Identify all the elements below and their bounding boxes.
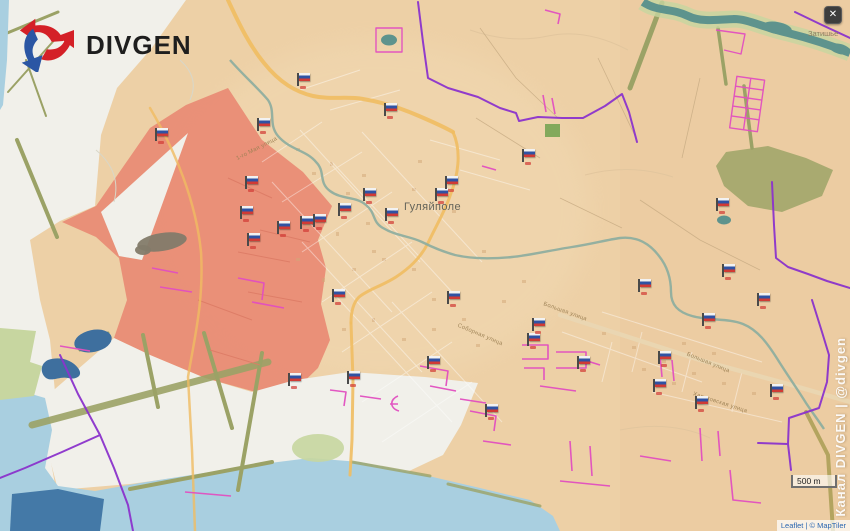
flag-marker-russia[interactable] xyxy=(288,372,302,389)
flag-sublabel xyxy=(250,246,256,249)
russia-flag-icon xyxy=(449,291,460,299)
flag-marker-russia[interactable] xyxy=(313,213,327,230)
flag-marker-russia[interactable] xyxy=(338,202,352,219)
flag-marker-russia[interactable] xyxy=(485,403,499,420)
flag-sublabel xyxy=(158,141,164,144)
flag-sublabel xyxy=(438,201,444,204)
russia-flag-icon xyxy=(640,279,651,287)
flag-sublabel xyxy=(387,116,393,119)
flag-sublabel xyxy=(350,384,356,387)
flag-sublabel xyxy=(450,304,456,307)
flag-marker-russia[interactable] xyxy=(638,278,652,295)
flag-sublabel xyxy=(535,331,541,334)
russia-flag-icon xyxy=(290,373,301,381)
flag-marker-russia[interactable] xyxy=(155,127,169,144)
russia-flag-icon xyxy=(487,404,498,412)
russia-flag-icon xyxy=(759,293,770,301)
map-canvas[interactable]: 1-го Мая улицаСоборная улицаБольшая улиц… xyxy=(0,0,850,531)
flag-sublabel xyxy=(525,162,531,165)
flag-marker-russia[interactable] xyxy=(702,312,716,329)
flag-sublabel xyxy=(366,201,372,204)
russia-flag-icon xyxy=(247,176,258,184)
attribution[interactable]: Leaflet | © MapTiler xyxy=(777,520,850,531)
flag-marker-russia[interactable] xyxy=(245,175,259,192)
flag-sublabel xyxy=(719,211,725,214)
russia-flag-icon xyxy=(242,206,253,214)
flag-sublabel xyxy=(243,219,249,222)
flag-sublabel xyxy=(530,346,536,349)
flag-marker-russia[interactable] xyxy=(522,148,536,165)
flags-layer xyxy=(0,0,850,531)
flag-marker-russia[interactable] xyxy=(332,288,346,305)
russia-flag-icon xyxy=(365,188,376,196)
russia-flag-icon xyxy=(340,203,351,211)
russia-flag-icon xyxy=(259,118,270,126)
russia-flag-icon xyxy=(704,313,715,321)
flag-sublabel xyxy=(580,369,586,372)
flag-marker-russia[interactable] xyxy=(247,232,261,249)
russia-flag-icon xyxy=(315,214,326,222)
flag-marker-russia[interactable] xyxy=(577,355,591,372)
russia-flag-icon xyxy=(302,216,313,224)
flag-sublabel xyxy=(280,234,286,237)
brand-logo-icon xyxy=(16,8,74,72)
flag-sublabel xyxy=(335,302,341,305)
flag-sublabel xyxy=(430,369,436,372)
flag-marker-russia[interactable] xyxy=(385,207,399,224)
flag-sublabel xyxy=(248,189,254,192)
russia-flag-icon xyxy=(724,264,735,272)
brand-logo: DIVGEN xyxy=(16,8,192,72)
flag-marker-russia[interactable] xyxy=(257,117,271,134)
flag-sublabel xyxy=(661,364,667,367)
scale-bar: 500 m xyxy=(791,475,837,488)
russia-flag-icon xyxy=(349,371,360,379)
flag-marker-russia[interactable] xyxy=(240,205,254,222)
watermark: Канал DIVGEN | @divgen xyxy=(833,337,848,517)
russia-flag-icon xyxy=(772,384,783,392)
russia-flag-icon xyxy=(697,396,708,404)
flag-marker-russia[interactable] xyxy=(427,355,441,372)
flag-sublabel xyxy=(488,417,494,420)
flag-sublabel xyxy=(705,326,711,329)
russia-flag-icon xyxy=(299,73,310,81)
flag-marker-russia[interactable] xyxy=(384,102,398,119)
russia-flag-icon xyxy=(655,379,666,387)
flag-sublabel xyxy=(656,392,662,395)
flag-marker-russia[interactable] xyxy=(653,378,667,395)
flag-sublabel xyxy=(260,131,266,134)
flag-sublabel xyxy=(698,409,704,412)
flag-sublabel xyxy=(303,229,309,232)
flag-sublabel xyxy=(760,306,766,309)
russia-flag-icon xyxy=(279,221,290,229)
flag-marker-russia[interactable] xyxy=(532,317,546,334)
russia-flag-icon xyxy=(157,128,168,136)
flag-marker-russia[interactable] xyxy=(447,290,461,307)
flag-marker-russia[interactable] xyxy=(770,383,784,400)
flag-marker-russia[interactable] xyxy=(722,263,736,280)
flag-sublabel xyxy=(316,227,322,230)
flag-sublabel xyxy=(291,386,297,389)
flag-marker-russia[interactable] xyxy=(757,292,771,309)
flag-marker-russia[interactable] xyxy=(527,332,541,349)
russia-flag-icon xyxy=(534,318,545,326)
russia-flag-icon xyxy=(386,103,397,111)
russia-flag-icon xyxy=(718,198,729,206)
flag-sublabel xyxy=(388,221,394,224)
russia-flag-icon xyxy=(579,356,590,364)
russia-flag-icon xyxy=(660,351,671,359)
flag-sublabel xyxy=(341,216,347,219)
flag-sublabel xyxy=(773,397,779,400)
flag-sublabel xyxy=(300,86,306,89)
brand-name: DIVGEN xyxy=(86,30,192,61)
flag-marker-russia[interactable] xyxy=(363,187,377,204)
flag-sublabel xyxy=(641,292,647,295)
close-button[interactable]: ✕ xyxy=(824,6,842,24)
flag-marker-russia[interactable] xyxy=(716,197,730,214)
russia-flag-icon xyxy=(429,356,440,364)
russia-flag-icon xyxy=(387,208,398,216)
flag-sublabel xyxy=(448,189,454,192)
flag-marker-russia[interactable] xyxy=(695,395,709,412)
flag-marker-russia[interactable] xyxy=(277,220,291,237)
russia-flag-icon xyxy=(524,149,535,157)
flag-marker-russia[interactable] xyxy=(300,215,314,232)
flag-sublabel xyxy=(725,277,731,280)
russia-flag-icon xyxy=(529,333,540,341)
flag-marker-russia[interactable] xyxy=(445,175,459,192)
russia-flag-icon xyxy=(334,289,345,297)
flag-marker-russia[interactable] xyxy=(658,350,672,367)
russia-flag-icon xyxy=(249,233,260,241)
flag-marker-russia[interactable] xyxy=(297,72,311,89)
flag-marker-russia[interactable] xyxy=(347,370,361,387)
russia-flag-icon xyxy=(447,176,458,184)
